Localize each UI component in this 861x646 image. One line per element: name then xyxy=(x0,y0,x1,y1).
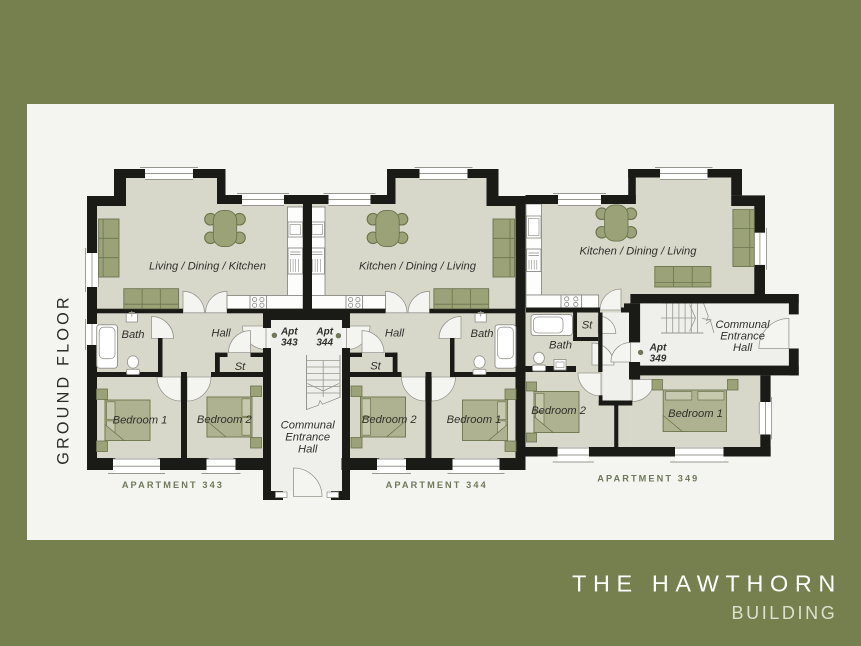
svg-text:Bedroom 2: Bedroom 2 xyxy=(362,414,418,426)
svg-text:Bath: Bath xyxy=(549,340,572,352)
svg-text:Communal: Communal xyxy=(281,420,336,432)
svg-text:Bath: Bath xyxy=(470,328,493,340)
svg-text:St: St xyxy=(582,320,593,332)
svg-text:343: 343 xyxy=(281,338,298,349)
svg-text:349: 349 xyxy=(650,354,667,365)
svg-text:Apt: Apt xyxy=(280,327,298,338)
svg-text:Entrance: Entrance xyxy=(285,432,330,444)
svg-text:GROUND FLOOR: GROUND FLOOR xyxy=(55,294,73,465)
svg-text:St: St xyxy=(235,361,246,373)
svg-text:APARTMENT 343: APARTMENT 343 xyxy=(122,480,224,490)
svg-text:Entrance: Entrance xyxy=(720,331,765,343)
svg-text:St: St xyxy=(370,361,381,373)
svg-text:Kitchen / Dining / Living: Kitchen / Dining / Living xyxy=(359,261,477,273)
svg-text:Living / Dining / Kitchen: Living / Dining / Kitchen xyxy=(149,261,266,273)
svg-text:Apt: Apt xyxy=(649,343,667,354)
svg-text:Kitchen / Dining / Living: Kitchen / Dining / Living xyxy=(580,246,698,258)
svg-text:BUILDING: BUILDING xyxy=(732,603,838,623)
svg-text:Bedroom 2: Bedroom 2 xyxy=(197,414,253,426)
svg-text:Bedroom 1: Bedroom 1 xyxy=(113,415,168,427)
svg-text:APARTMENT 344: APARTMENT 344 xyxy=(386,480,488,490)
svg-text:Hall: Hall xyxy=(733,342,753,354)
svg-text:Bath: Bath xyxy=(121,329,144,341)
svg-text:Communal: Communal xyxy=(716,319,771,331)
svg-text:Bedroom 2: Bedroom 2 xyxy=(531,405,587,417)
svg-text:Hall: Hall xyxy=(385,328,405,340)
svg-text:APARTMENT 349: APARTMENT 349 xyxy=(597,474,699,484)
svg-text:Hall: Hall xyxy=(298,444,318,456)
svg-text:THE HAWTHORN: THE HAWTHORN xyxy=(572,570,842,596)
svg-text:Bedroom 1: Bedroom 1 xyxy=(447,414,502,426)
svg-text:Hall: Hall xyxy=(211,328,231,340)
svg-text:Apt: Apt xyxy=(315,327,333,338)
svg-text:344: 344 xyxy=(316,338,333,349)
svg-text:Bedroom 1: Bedroom 1 xyxy=(668,408,723,420)
